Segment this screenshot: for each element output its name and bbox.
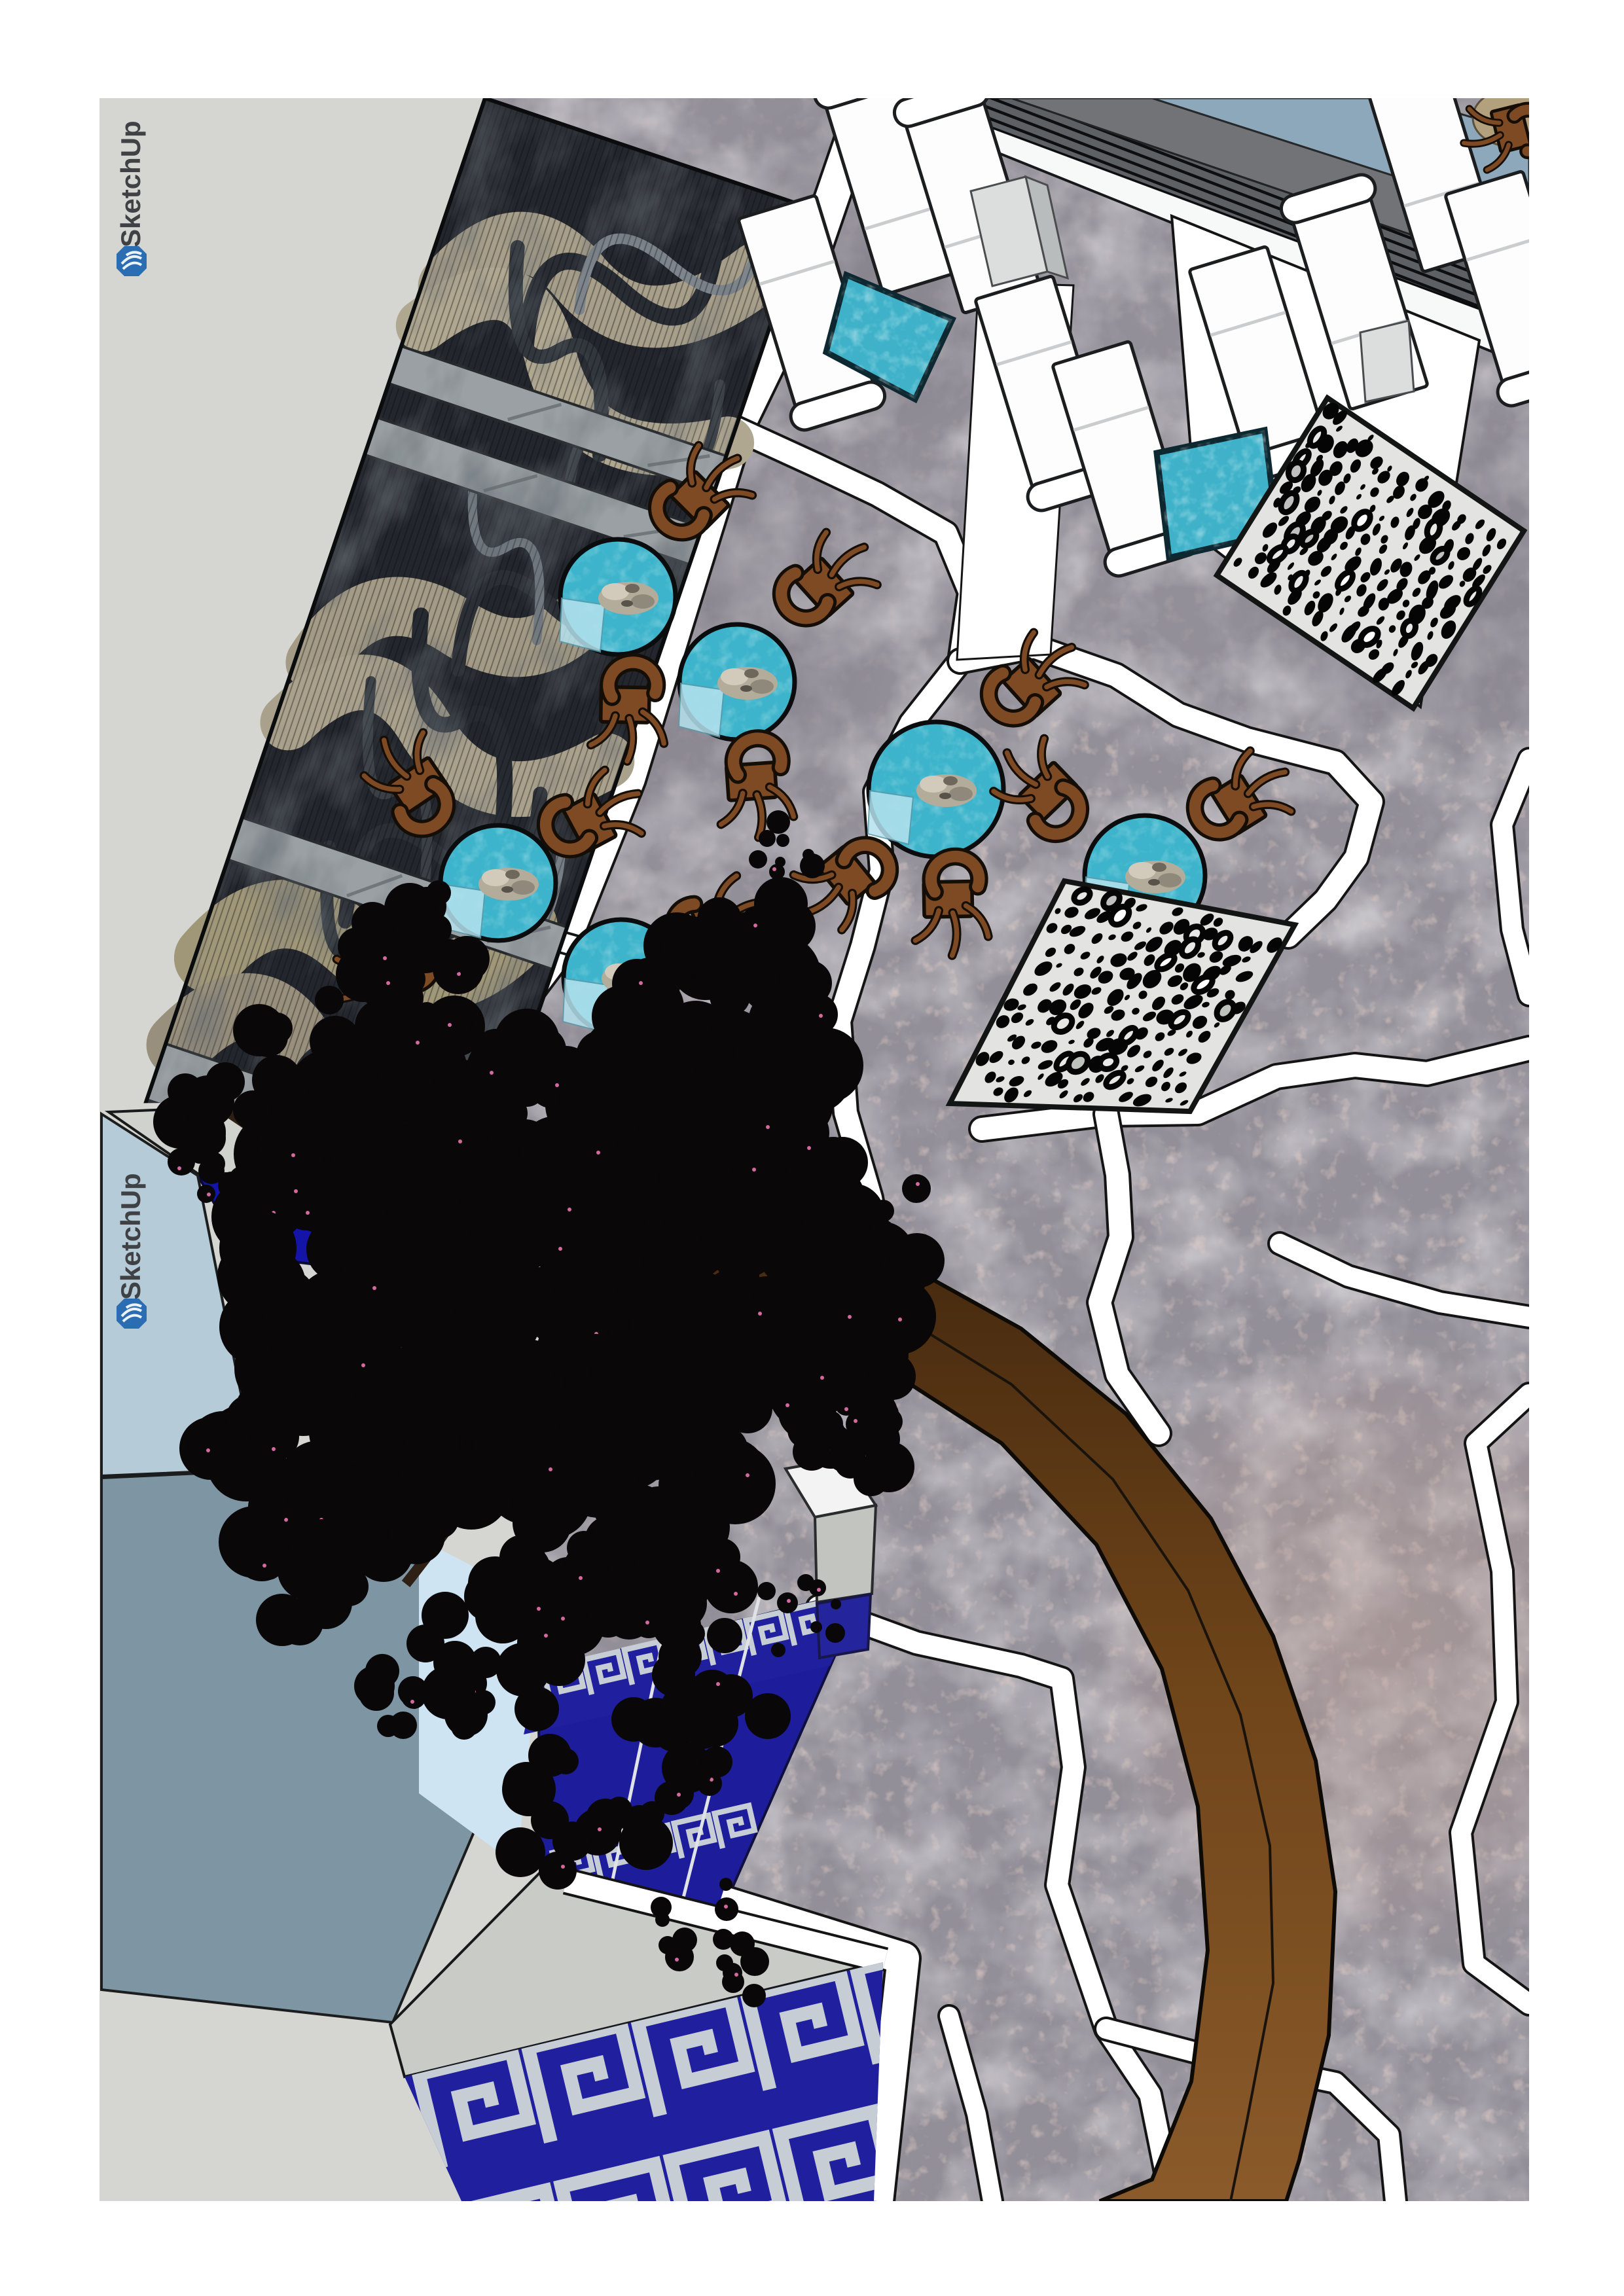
svg-text:SketchUp: SketchUp xyxy=(115,1173,146,1300)
svg-text:SketchUp: SketchUp xyxy=(115,120,146,247)
